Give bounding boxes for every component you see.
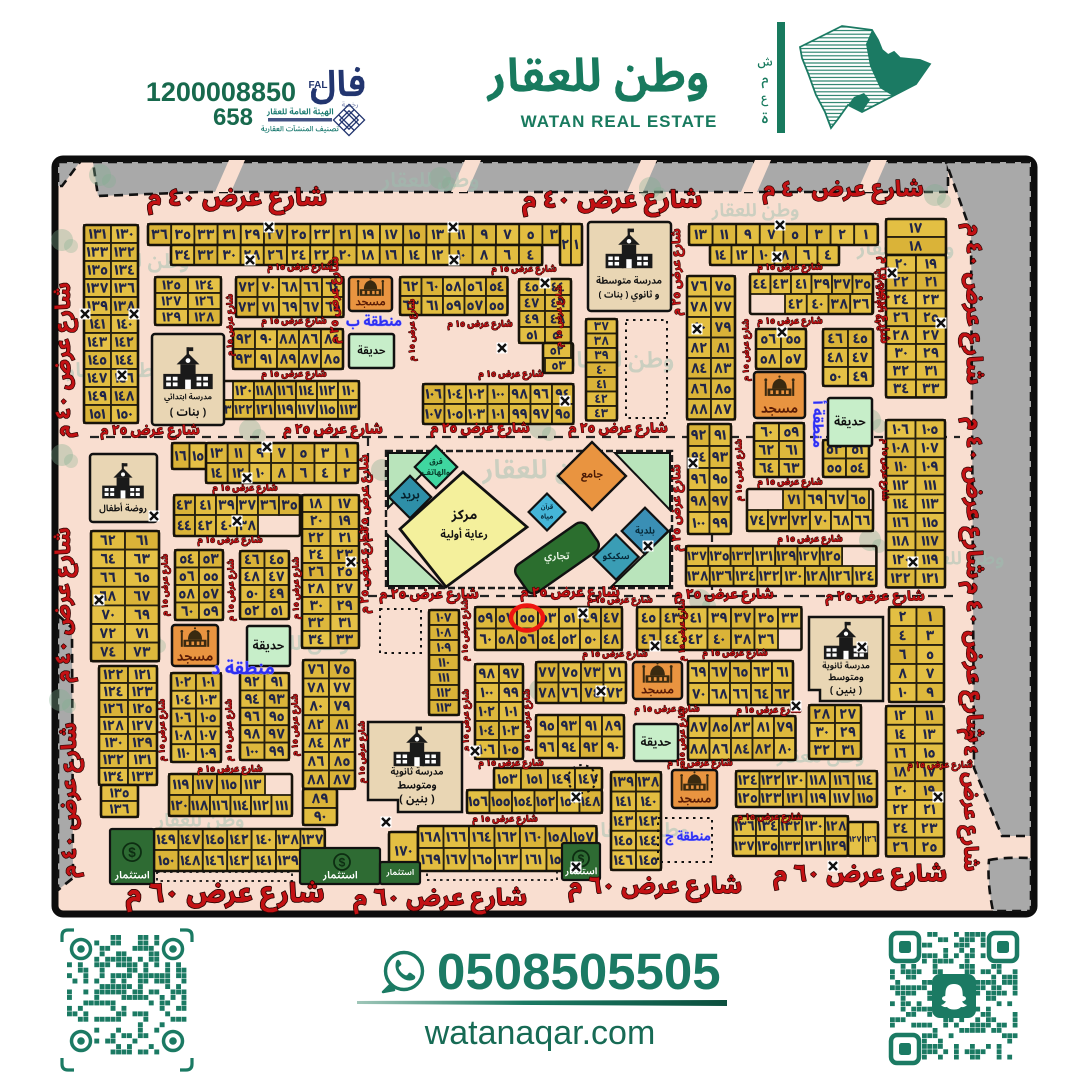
svg-text:watanaqar.com: watanaqar.com <box>424 1014 656 1052</box>
svg-text:0508505505: 0508505505 <box>437 943 721 1000</box>
svg-text:$: $ <box>128 845 136 860</box>
svg-text:FAL: FAL <box>309 80 328 91</box>
svg-text:658: 658 <box>213 104 253 131</box>
svg-text:WATAN REAL ESTATE: WATAN REAL ESTATE <box>521 112 718 131</box>
svg-text:$: $ <box>339 855 346 869</box>
svg-text:1200008850: 1200008850 <box>146 77 296 107</box>
